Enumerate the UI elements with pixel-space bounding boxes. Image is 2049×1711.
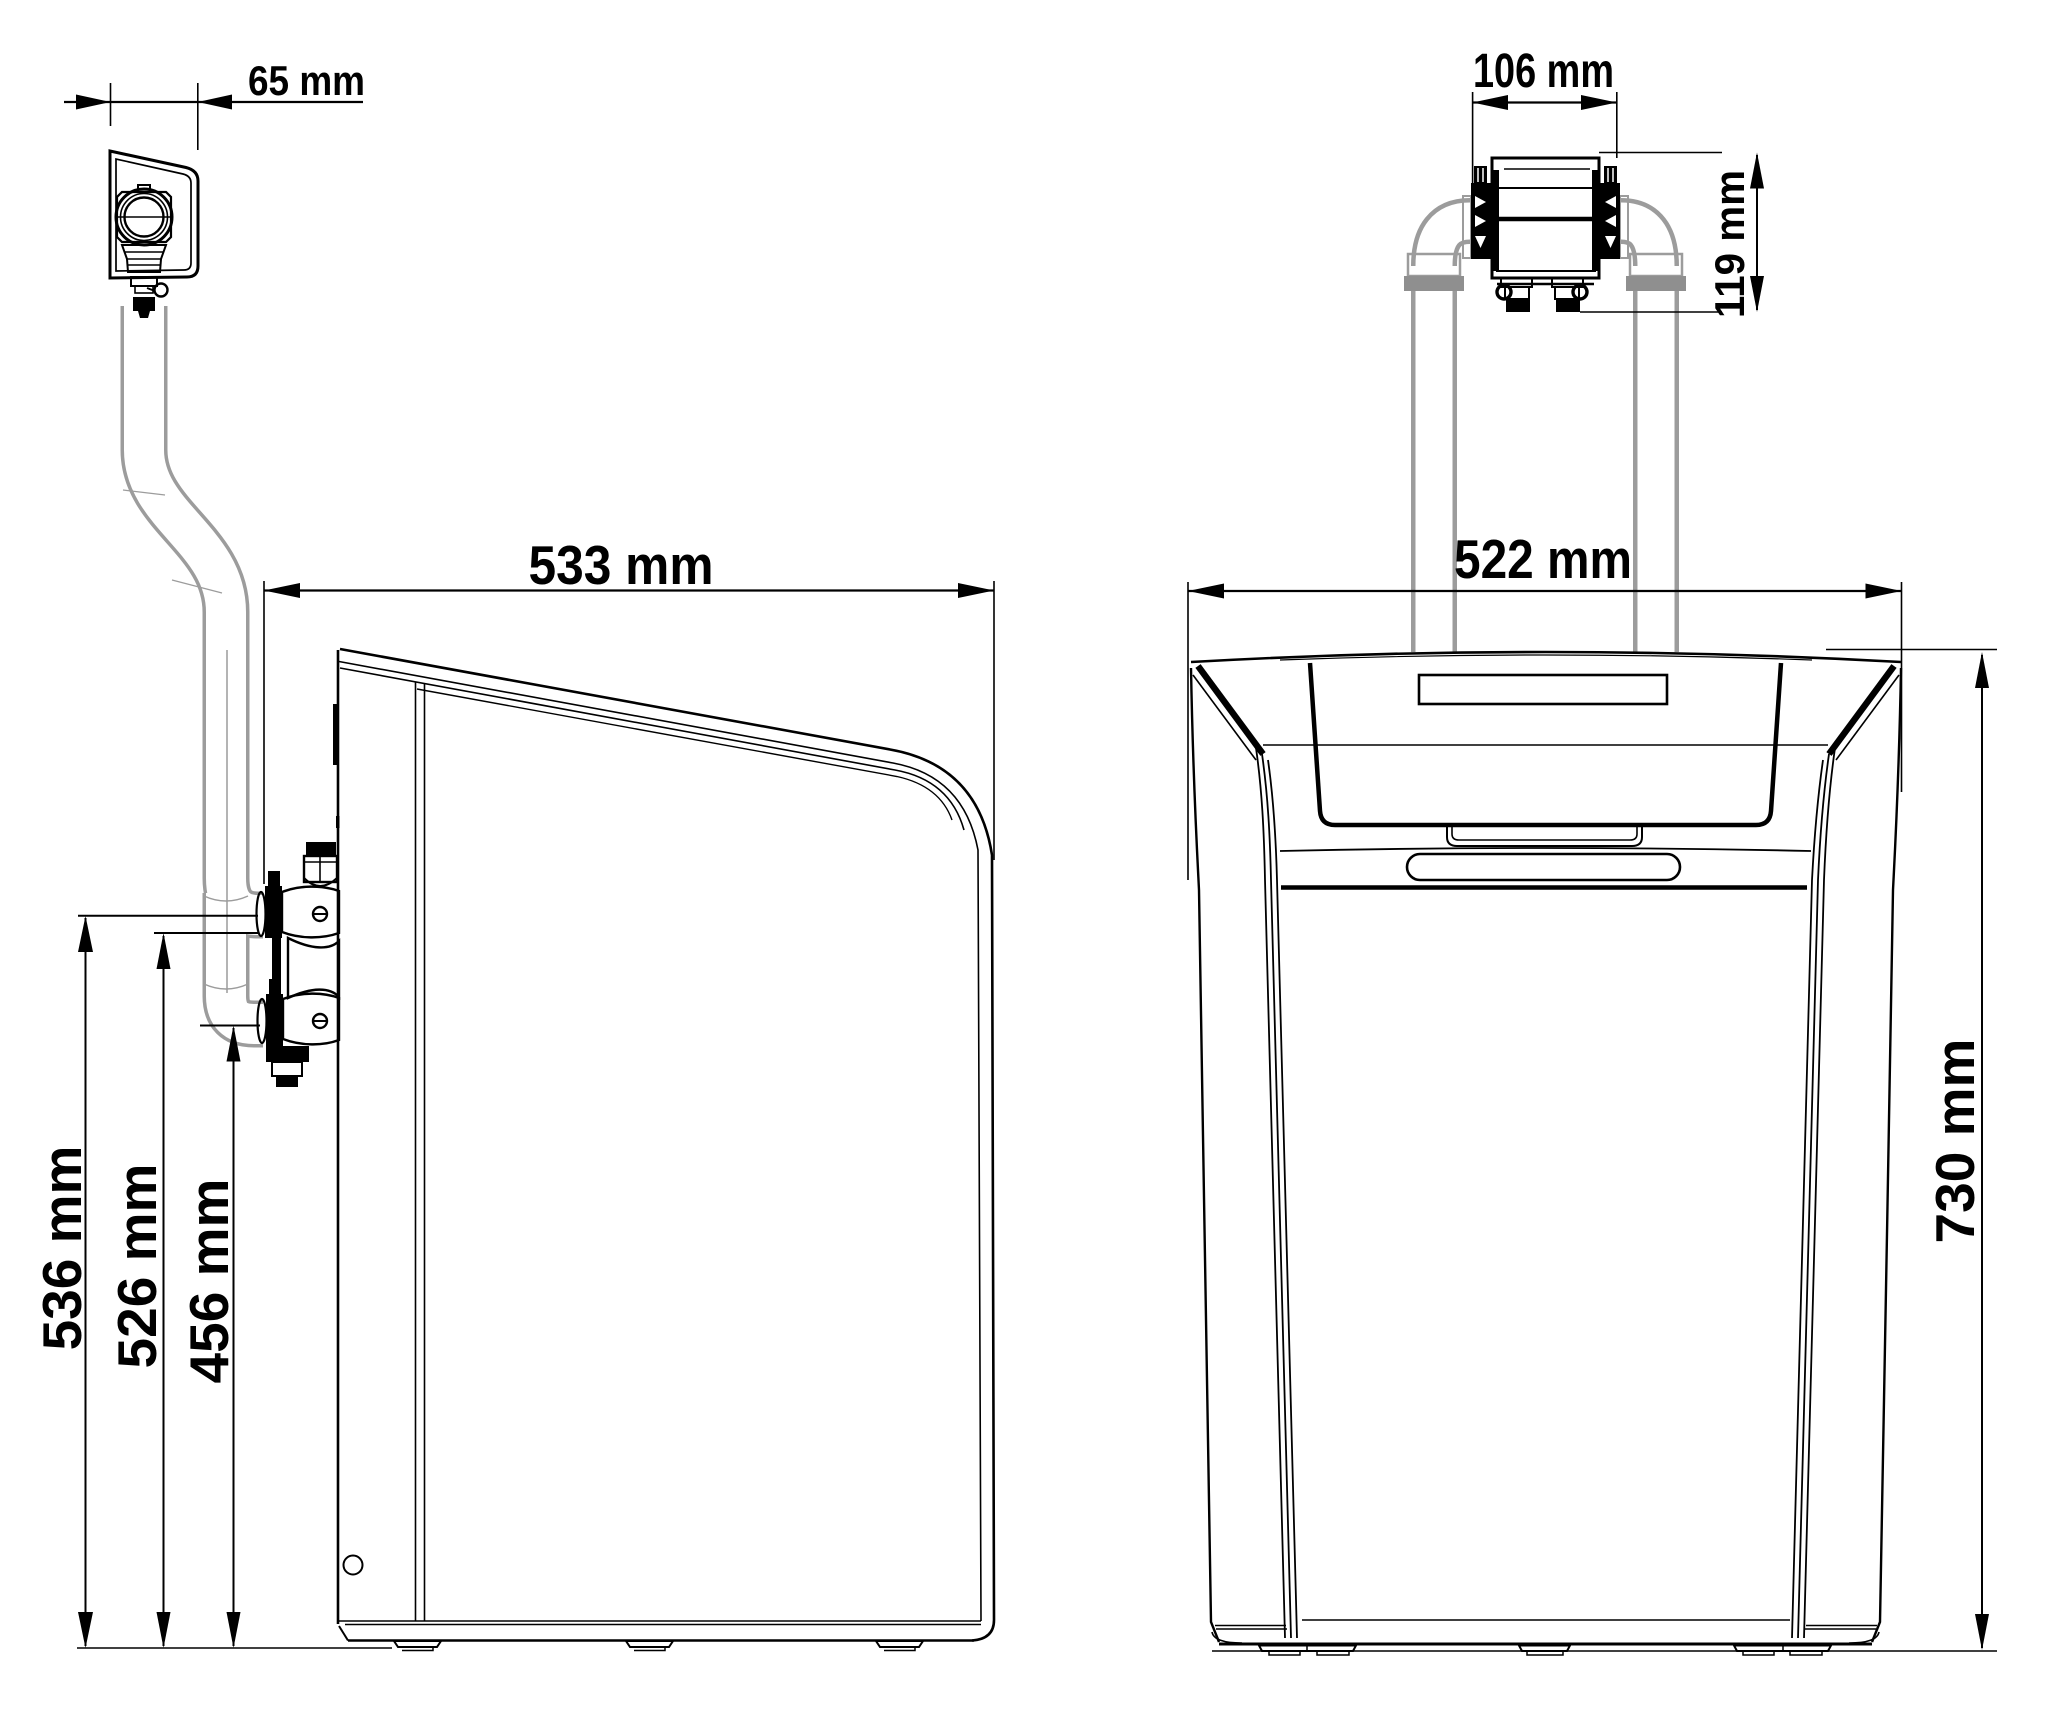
- svg-text:522 mm: 522 mm: [1454, 528, 1632, 590]
- svg-text:526 mm: 526 mm: [106, 1164, 168, 1369]
- svg-text:730 mm: 730 mm: [1924, 1039, 1986, 1244]
- svg-text:536 mm: 536 mm: [31, 1146, 93, 1351]
- svg-text:456 mm: 456 mm: [178, 1179, 240, 1384]
- svg-text:533 mm: 533 mm: [529, 534, 714, 596]
- svg-text:119 mm: 119 mm: [1706, 170, 1753, 318]
- svg-text:106 mm: 106 mm: [1473, 45, 1614, 98]
- svg-text:65 mm: 65 mm: [248, 57, 365, 104]
